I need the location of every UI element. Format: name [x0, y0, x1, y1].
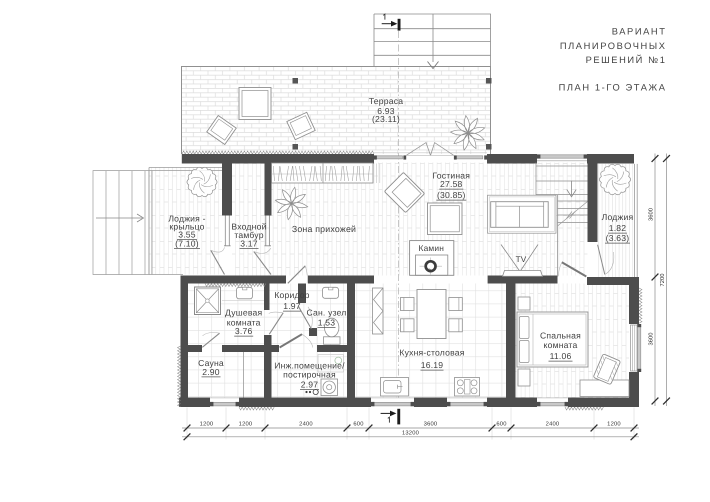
svg-text:ПЛАНИРОВОЧНЫХ: ПЛАНИРОВОЧНЫХ	[560, 41, 667, 51]
svg-text:2400: 2400	[299, 420, 313, 427]
svg-text:2400: 2400	[546, 420, 560, 427]
svg-text:Коридор: Коридор	[274, 290, 309, 300]
svg-text:Терраса: Терраса	[369, 96, 403, 106]
svg-text:3600: 3600	[647, 208, 654, 221]
svg-text:2.90: 2.90	[202, 367, 220, 377]
svg-text:комната: комната	[544, 340, 578, 350]
svg-text:(23.11): (23.11)	[372, 114, 400, 124]
svg-text:ПЛАН 1-ГО ЭТАЖА: ПЛАН 1-ГО ЭТАЖА	[559, 83, 667, 93]
svg-text:600: 600	[353, 420, 363, 427]
svg-text:Сан. узел: Сан. узел	[306, 308, 346, 318]
svg-text:(30.85): (30.85)	[437, 190, 466, 200]
svg-text:600: 600	[496, 420, 506, 427]
svg-text:Кухня-столовая: Кухня-столовая	[399, 347, 464, 357]
svg-text:1.97: 1.97	[283, 301, 301, 311]
svg-text:13200: 13200	[402, 429, 419, 436]
svg-text:Душевая: Душевая	[225, 308, 262, 318]
svg-text:(7.10): (7.10)	[175, 238, 199, 248]
svg-text:1200: 1200	[239, 420, 253, 427]
svg-text:27.58: 27.58	[440, 179, 463, 189]
svg-text:3600: 3600	[647, 333, 654, 346]
svg-text:3.76: 3.76	[235, 326, 253, 336]
svg-text:1200: 1200	[607, 420, 621, 427]
svg-text:7200: 7200	[659, 274, 666, 287]
svg-text:3600: 3600	[424, 420, 438, 427]
svg-text:1.82: 1.82	[609, 223, 627, 233]
svg-text:Лоджия: Лоджия	[602, 212, 634, 222]
svg-text:Зона прихожей: Зона прихожей	[292, 224, 356, 234]
svg-text:постирочная: постирочная	[283, 369, 336, 379]
svg-text:11.06: 11.06	[550, 351, 572, 361]
svg-text:ВАРИАНТ: ВАРИАНТ	[612, 27, 667, 37]
svg-text:16.19: 16.19	[421, 360, 444, 370]
svg-text:3.17: 3.17	[240, 239, 258, 249]
svg-text:1200: 1200	[200, 420, 214, 427]
svg-text:TV: TV	[516, 255, 527, 264]
svg-text:РЕШЕНИЙ №1: РЕШЕНИЙ №1	[586, 54, 667, 65]
svg-text:(3.63): (3.63)	[606, 233, 630, 243]
svg-text:1.53: 1.53	[318, 318, 336, 328]
svg-text:2.97: 2.97	[301, 380, 319, 390]
svg-text:Камин: Камин	[418, 243, 444, 253]
svg-text:Спальная: Спальная	[540, 331, 581, 341]
